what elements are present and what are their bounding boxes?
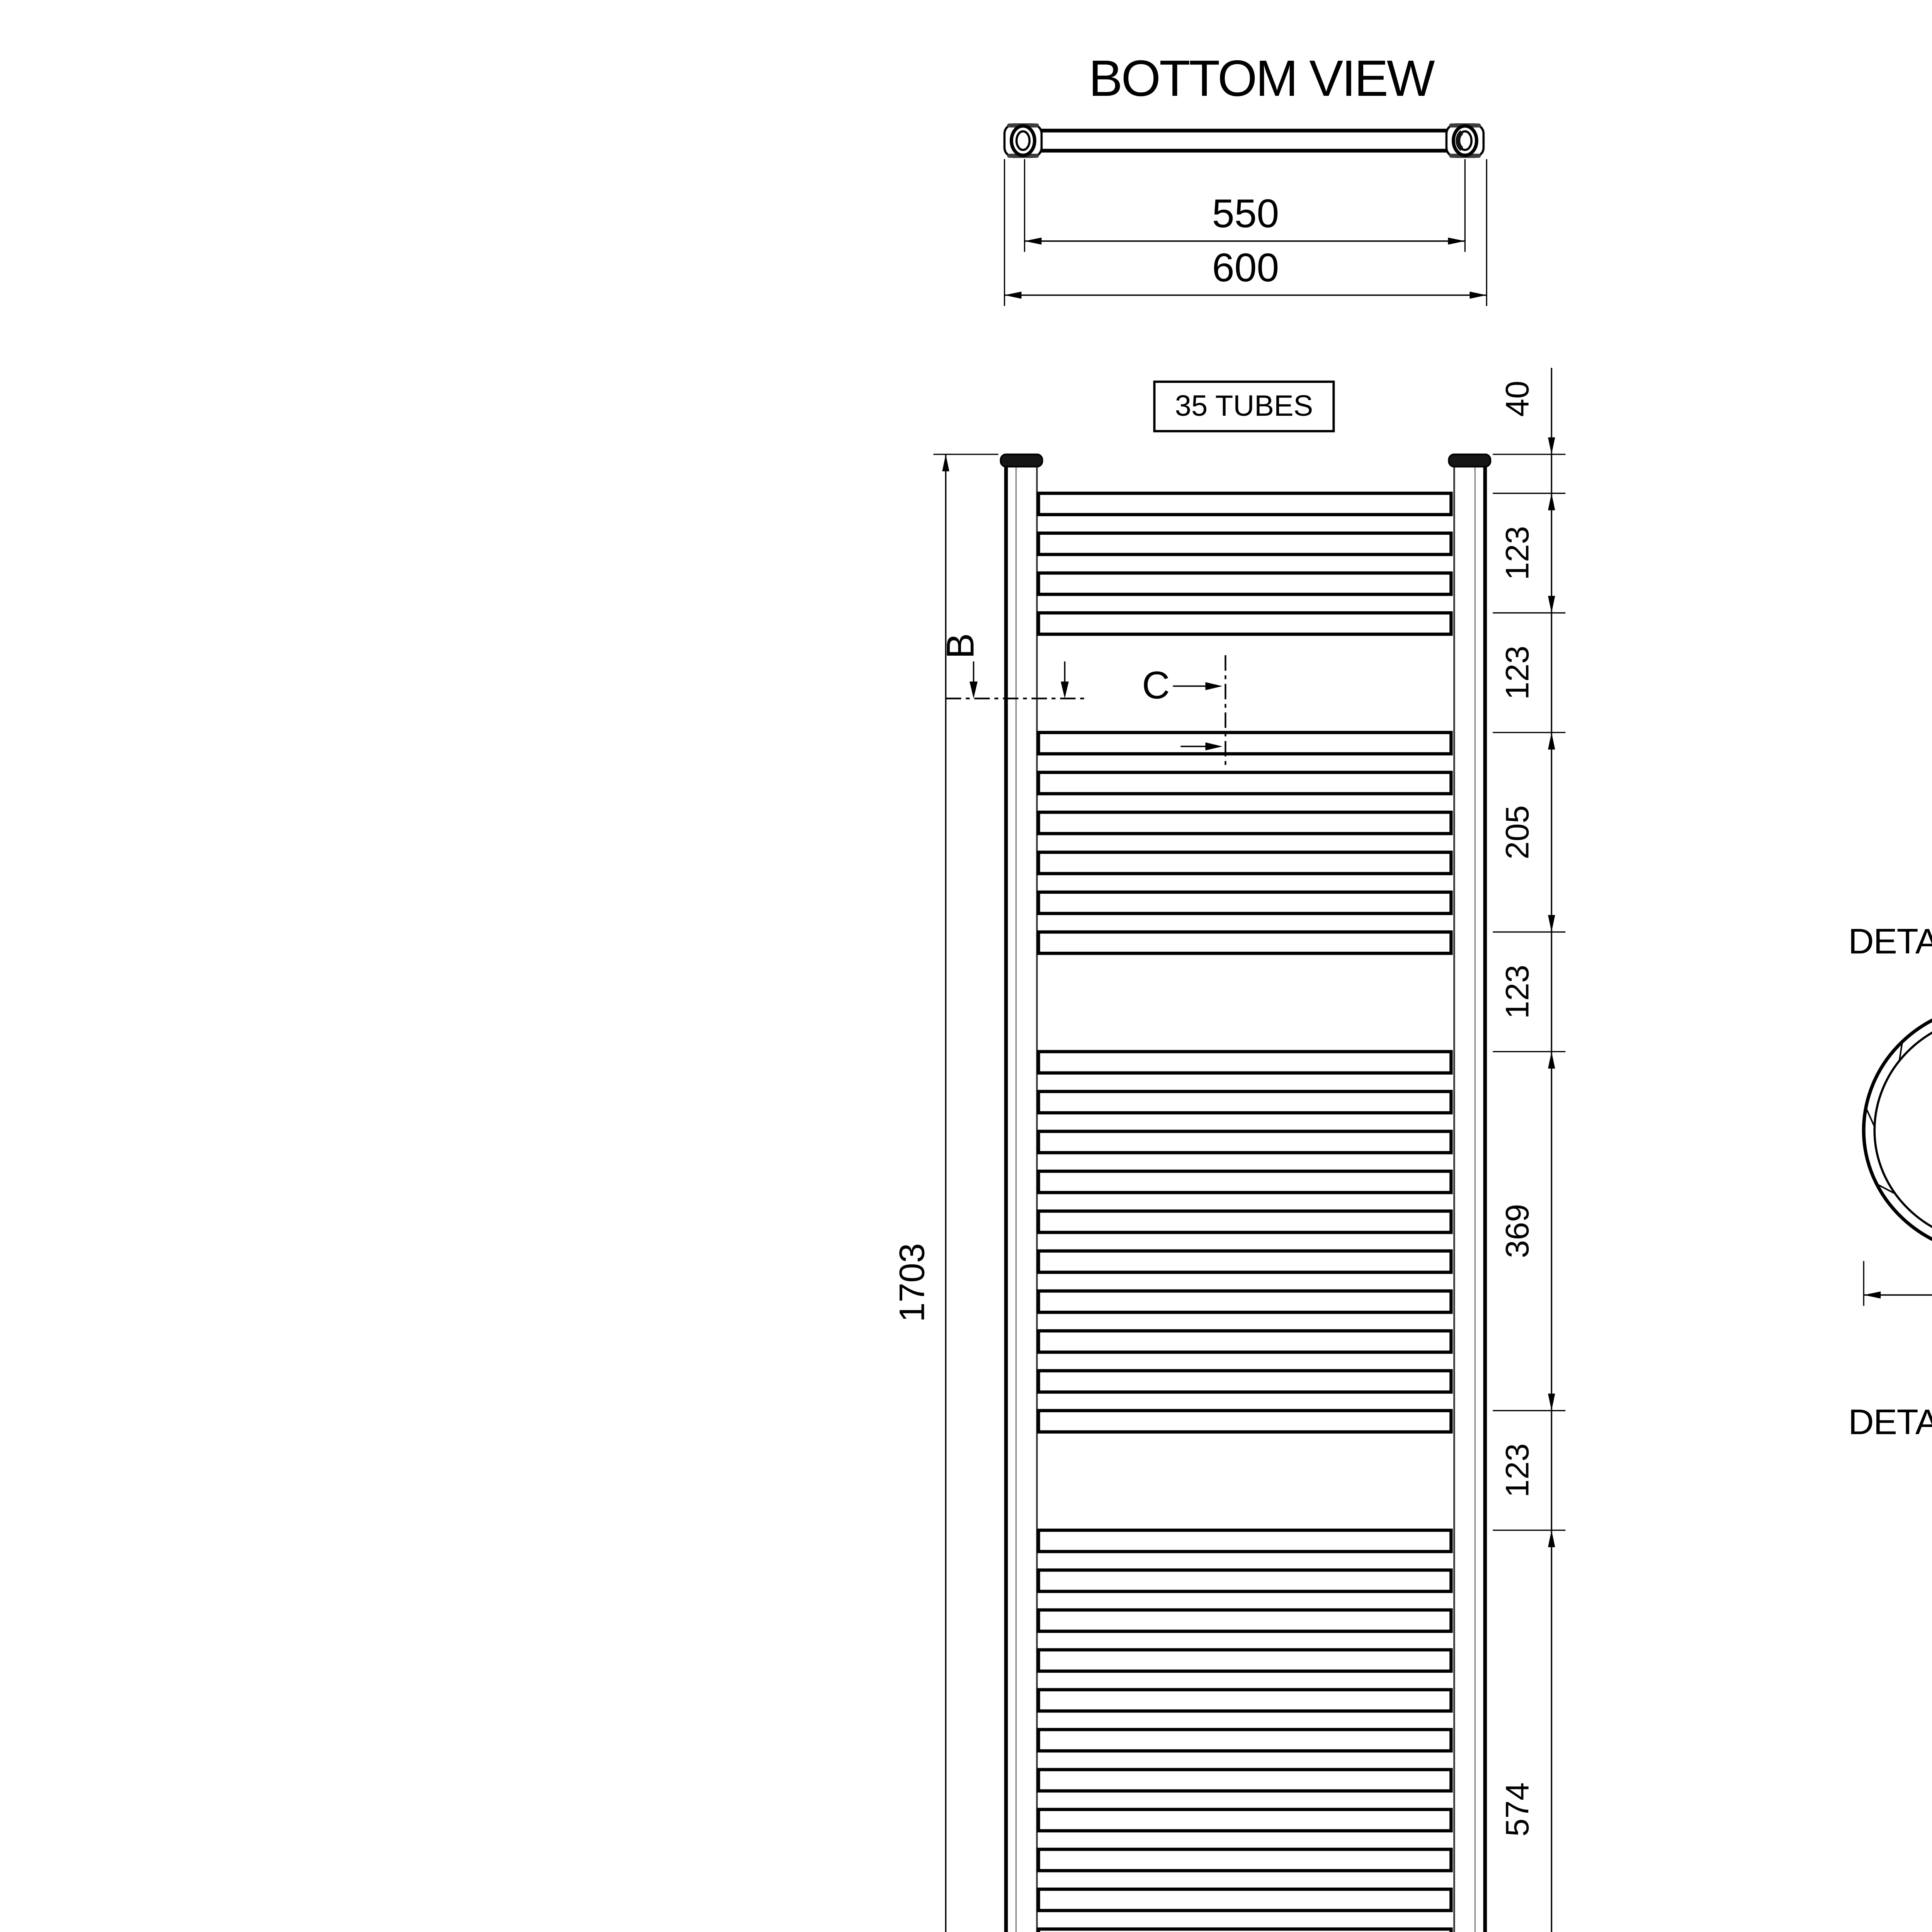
section-b-label: B (939, 633, 982, 659)
tube (1039, 493, 1451, 515)
front-view: 35 TUBES (893, 368, 1566, 1932)
tube (1039, 1331, 1451, 1352)
bottom-view-left-cap-icon (1005, 124, 1042, 157)
tube (1039, 1291, 1451, 1312)
tube (1039, 1211, 1451, 1232)
chain-dim-label: 369 (1499, 1204, 1535, 1258)
drawing-canvas: BOTTOM VIEW (0, 0, 1932, 1932)
tube (1039, 1929, 1451, 1932)
tube-count-label: 35 TUBES (1175, 389, 1313, 422)
tube (1039, 1690, 1451, 1711)
left-rail (1006, 454, 1037, 1932)
detail-b-profile (1864, 1004, 1932, 1256)
tube-count-box: 35 TUBES (1155, 382, 1334, 431)
tube (1039, 1131, 1451, 1153)
tube (1039, 1411, 1451, 1432)
tube (1039, 1371, 1451, 1392)
chain-dim-label: 123 (1499, 526, 1535, 580)
right-rail (1454, 454, 1485, 1932)
section-c-label: C (1142, 664, 1170, 707)
tube (1039, 1570, 1451, 1591)
dimension-chain: 4012312320512336912357423 (1493, 368, 1565, 1932)
detail-c: DETAIL C - Tube Cut ⌀ 22 (1848, 1402, 1932, 1779)
bottom-view-dim-550: 550 (1025, 159, 1465, 252)
tube (1039, 892, 1451, 913)
tube (1039, 1171, 1451, 1192)
tube (1039, 812, 1451, 833)
tube (1039, 932, 1451, 953)
tube (1039, 1092, 1451, 1113)
dim-600-label: 600 (1212, 245, 1279, 290)
chain-dim-label: 123 (1499, 646, 1535, 700)
tube (1039, 733, 1451, 754)
detail-b-dim-40: 40 (1864, 1252, 1932, 1306)
tube (1039, 1530, 1451, 1551)
tube (1039, 1770, 1451, 1791)
chain-dim-label: 123 (1499, 1443, 1535, 1497)
tube (1039, 852, 1451, 874)
tube-array (1039, 493, 1451, 1932)
tube (1039, 1849, 1451, 1871)
dim-550-label: 550 (1212, 191, 1279, 236)
bottom-view-bar (1005, 124, 1484, 157)
tube (1039, 1610, 1451, 1631)
tube (1039, 1650, 1451, 1671)
tube (1039, 1052, 1451, 1073)
chain-dim-label: 205 (1499, 805, 1535, 859)
tube (1039, 772, 1451, 794)
tube (1039, 1730, 1451, 1751)
tube (1039, 573, 1451, 594)
bottom-view: BOTTOM VIEW (1005, 50, 1487, 306)
chain-dim-label: 123 (1499, 965, 1535, 1019)
bottom-view-title: BOTTOM VIEW (1088, 50, 1435, 107)
chain-dim-label: 574 (1499, 1782, 1535, 1837)
tube (1039, 1810, 1451, 1831)
tube (1039, 533, 1451, 554)
dim-1703-label: 1703 (893, 1243, 932, 1322)
tube (1039, 1251, 1451, 1272)
detail-c-title: DETAIL C - Tube Cut (1848, 1402, 1932, 1442)
detail-b: DETAIL B - Profile Cut 3 (1848, 922, 1932, 1306)
tube (1039, 613, 1451, 634)
tube (1039, 1889, 1451, 1910)
chain-dim-label: 40 (1499, 381, 1535, 417)
detail-b-title: DETAIL B - Profile Cut (1848, 922, 1932, 961)
dim-1703: 1703 (893, 454, 998, 1932)
bottom-view-right-cap-icon (1446, 124, 1483, 157)
